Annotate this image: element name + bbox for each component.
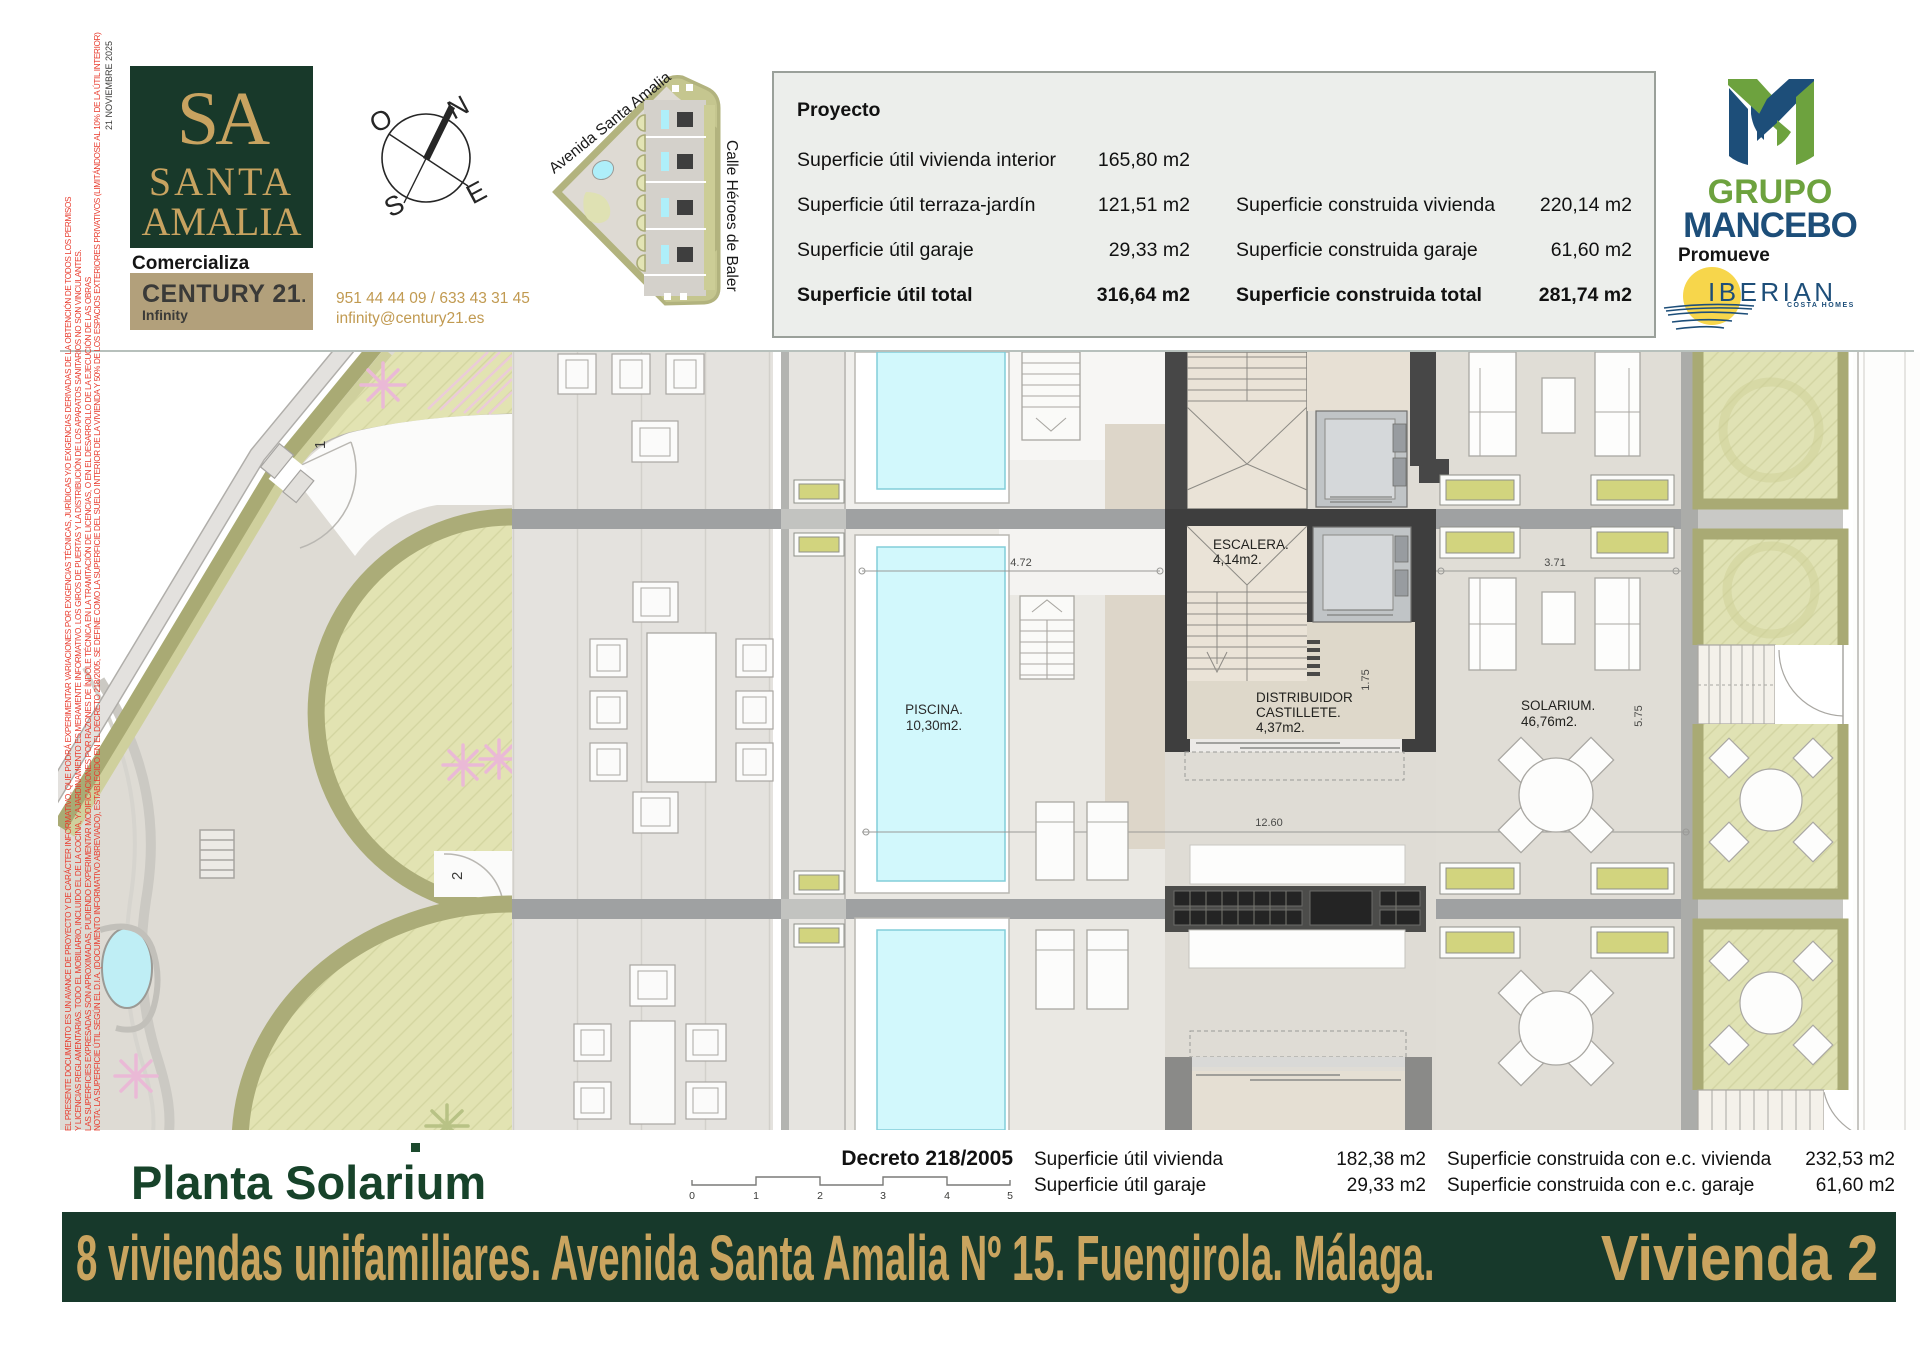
- svg-text:DISTRIBUIDOR: DISTRIBUIDOR: [1256, 690, 1353, 705]
- svg-text:3: 3: [880, 1190, 886, 1202]
- svg-text:4,37m2.: 4,37m2.: [1256, 720, 1305, 735]
- svg-text:SOLARIUM.: SOLARIUM.: [1521, 698, 1595, 713]
- svg-text:S: S: [379, 188, 409, 223]
- svg-text:O: O: [365, 103, 398, 139]
- svg-text:ESCALERA.: ESCALERA.: [1213, 537, 1289, 552]
- svg-text:12.60: 12.60: [1255, 817, 1283, 829]
- svg-text:CASTILLETE.: CASTILLETE.: [1256, 705, 1341, 720]
- svg-text:1: 1: [312, 441, 329, 449]
- svg-text:5: 5: [1007, 1190, 1013, 1202]
- svg-text:1.75: 1.75: [1360, 669, 1372, 690]
- svg-text:2: 2: [817, 1190, 823, 1202]
- svg-text:4,14m2.: 4,14m2.: [1213, 552, 1262, 567]
- svg-text:4: 4: [944, 1190, 950, 1202]
- svg-text:21 NOVIEMBRE 2025: 21 NOVIEMBRE 2025: [104, 41, 114, 130]
- svg-text:E: E: [461, 175, 491, 210]
- svg-text:0: 0: [689, 1190, 695, 1202]
- svg-text:1: 1: [753, 1190, 759, 1202]
- svg-text:10,30m2.: 10,30m2.: [906, 718, 962, 733]
- svg-text:5.75: 5.75: [1633, 705, 1645, 726]
- svg-text:PISCINA.: PISCINA.: [905, 702, 963, 717]
- svg-text:2: 2: [449, 872, 466, 880]
- svg-text:46,76m2.: 46,76m2.: [1521, 714, 1577, 729]
- svg-text:3.71: 3.71: [1544, 557, 1565, 569]
- svg-text:4.72: 4.72: [1010, 557, 1031, 569]
